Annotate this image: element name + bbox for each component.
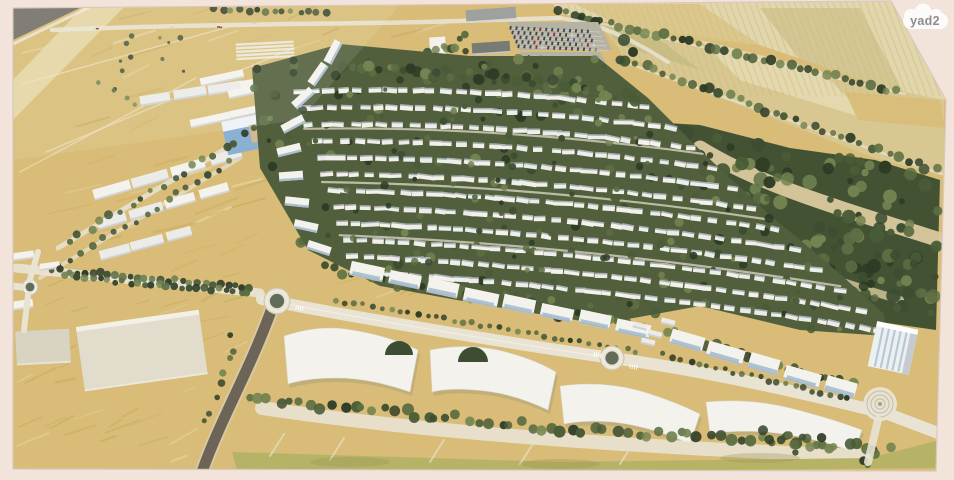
warm-wash xyxy=(13,1,946,471)
yad2-logo-text: yad2 xyxy=(910,14,940,28)
aerial-rendering-photo: yad2 xyxy=(0,0,954,480)
scene-canvas: yad2 xyxy=(0,0,954,480)
photo-light-wash xyxy=(13,1,946,471)
photo-content xyxy=(0,0,954,480)
